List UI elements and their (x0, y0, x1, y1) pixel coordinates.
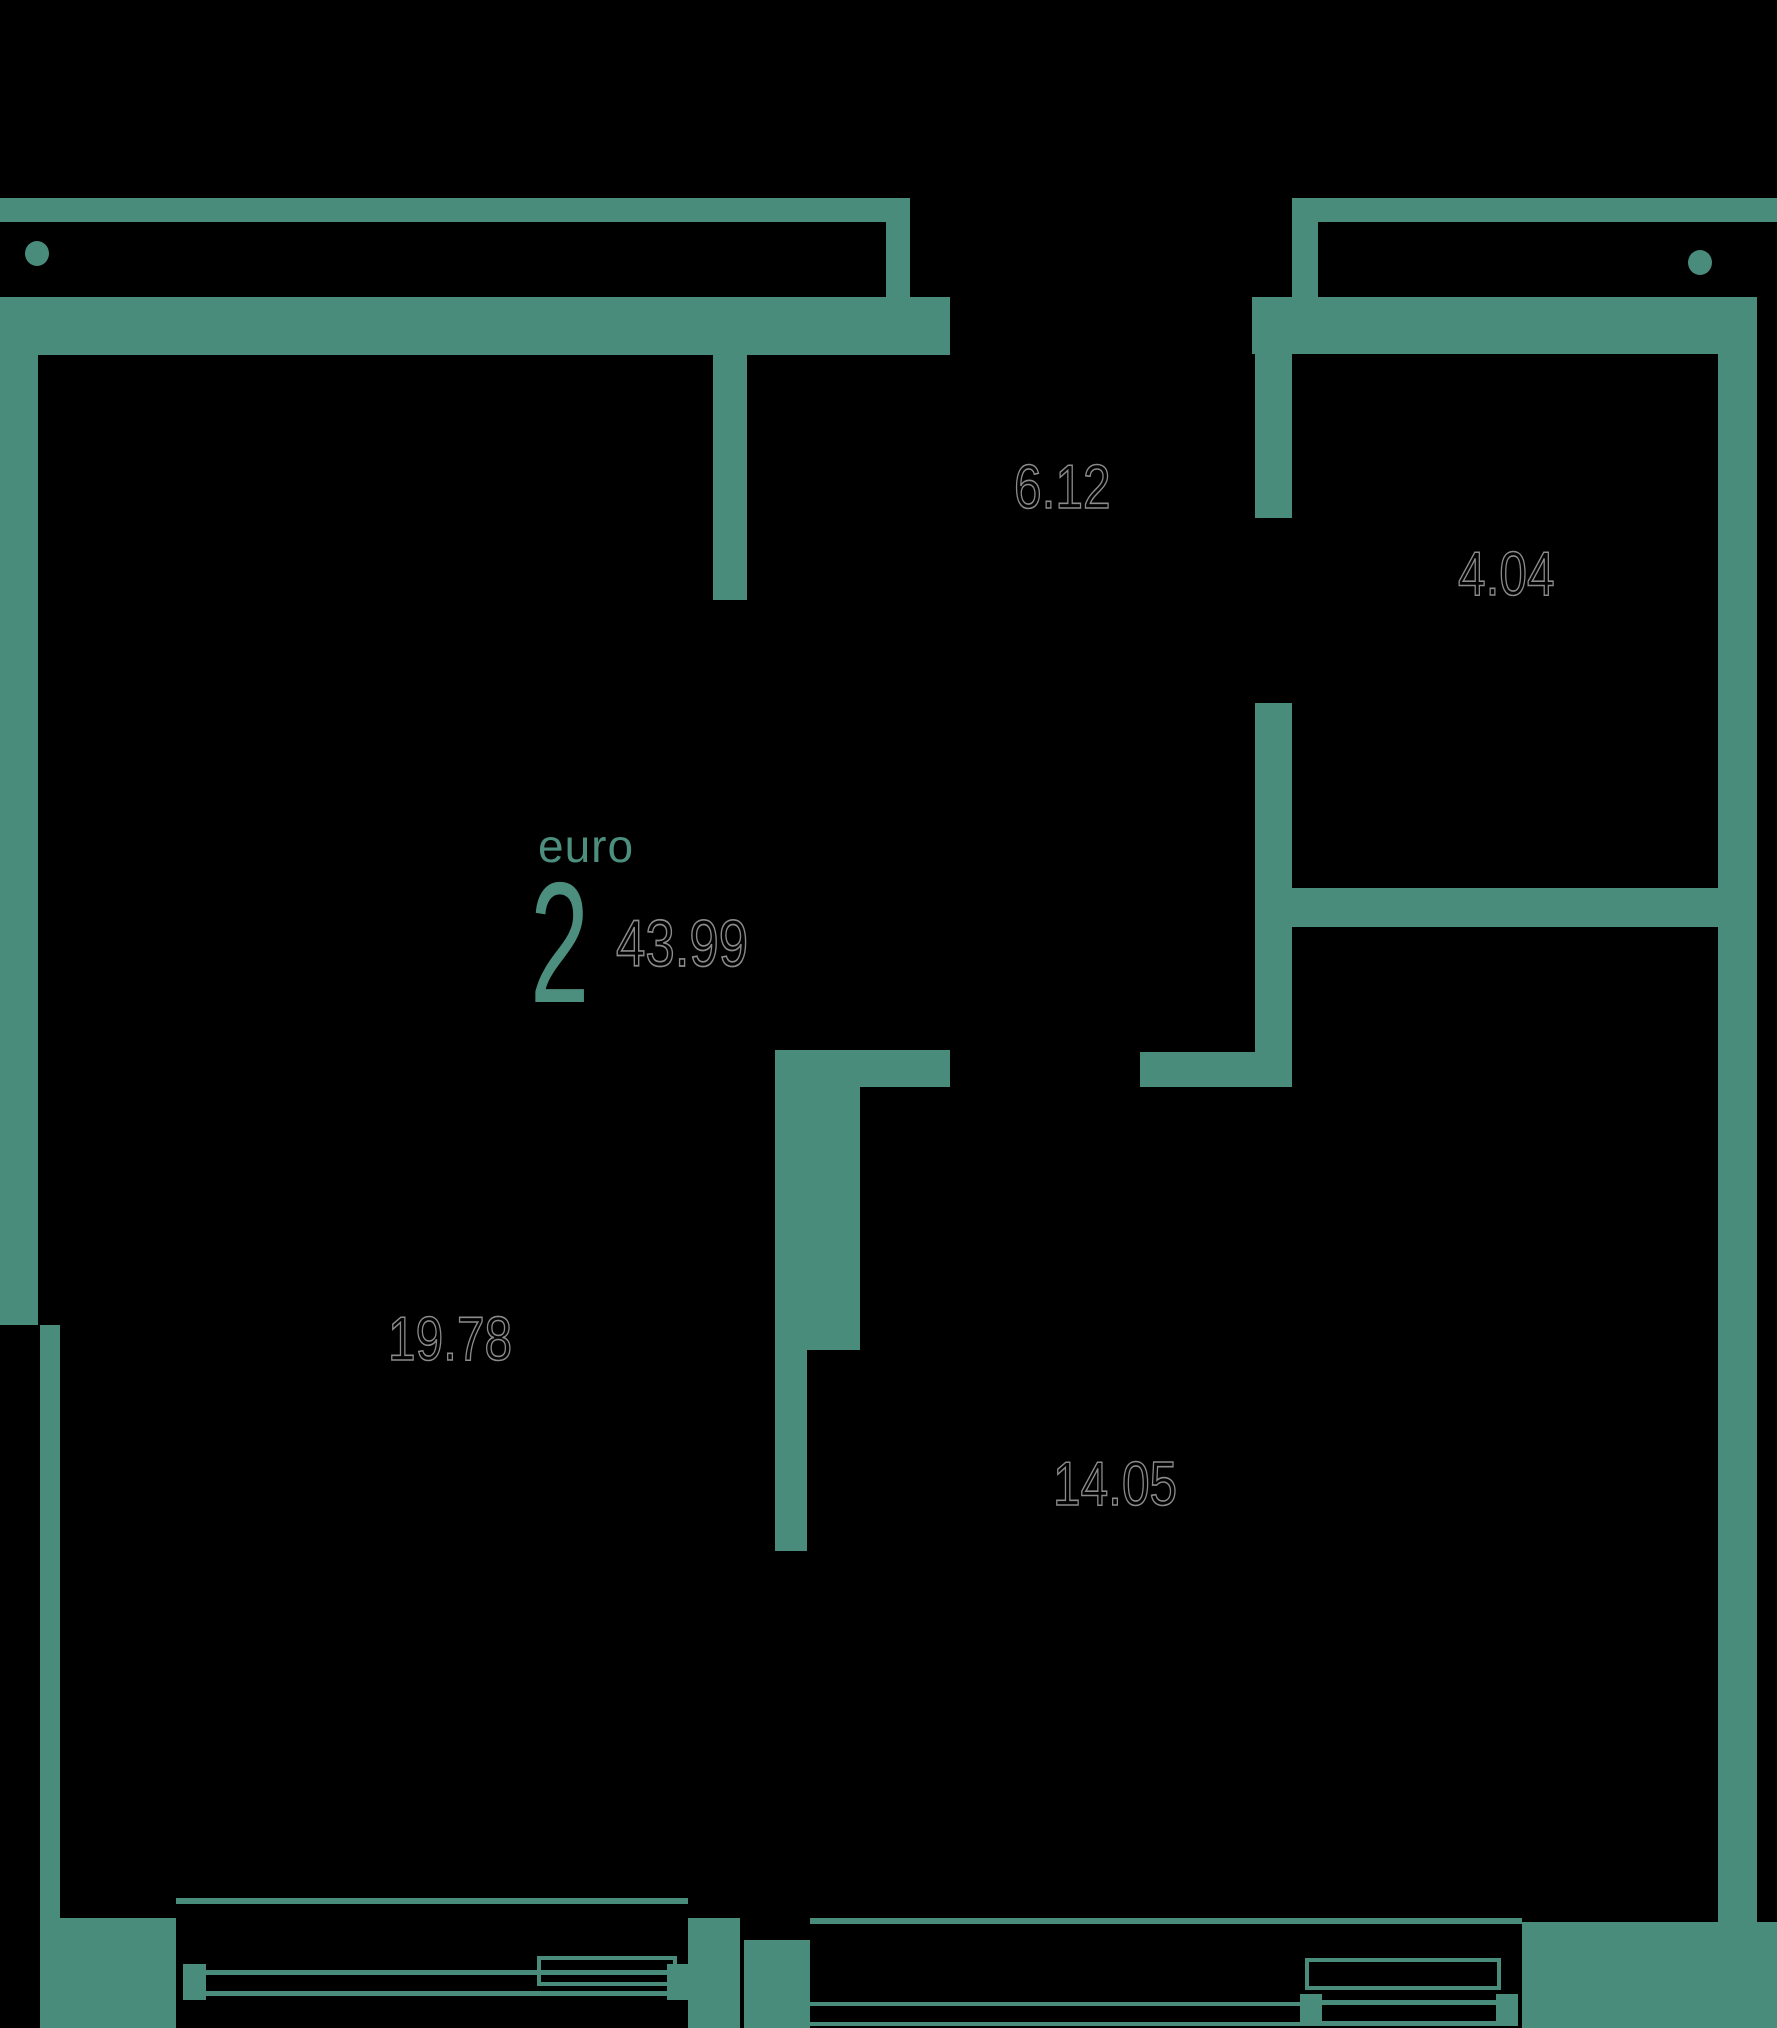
window-left-inner-line (176, 1898, 688, 1904)
wall-corner-bottom-right (1522, 1922, 1777, 2028)
apartment-rooms-count: 2 (530, 857, 589, 1029)
wall-kitchen-left-thick (775, 1087, 860, 1350)
balcony-door-line-bottom (810, 2022, 1302, 2026)
wall-top-left (0, 297, 950, 355)
wall-top-right (1252, 297, 1718, 354)
apartment-total-area: 43.99 (616, 910, 748, 976)
window-left-cap-left (183, 1964, 206, 2000)
balcony-rail-left (0, 198, 910, 222)
window-right-casement (1305, 1958, 1501, 1990)
wall-left-loggia (40, 1325, 60, 2028)
balcony-rail-right (1292, 198, 1777, 222)
window-right-cap-right (1496, 1994, 1518, 2026)
balcony-rail-left-end (886, 198, 910, 298)
column-dot-right-icon (1688, 250, 1712, 275)
window-right-frame-top (1300, 2000, 1518, 2005)
room-area-bathroom: 4.04 (1458, 544, 1555, 606)
window-right-inner-line (810, 1918, 1522, 1924)
floor-plan: euro 2 43.99 6.12 4.04 19.78 14.05 (0, 0, 1777, 2028)
balcony-door-line-top (810, 2002, 1302, 2006)
pier-bottom-left (60, 1918, 176, 2028)
window-left-frame-bottom (183, 1991, 690, 1996)
window-right-cap-left (1300, 1994, 1322, 2026)
wall-right (1718, 297, 1757, 1922)
pier-bottom-middle-left (688, 1918, 740, 2028)
pier-bottom-middle (744, 1940, 810, 2028)
wall-hallway-left (713, 355, 747, 600)
wall-bathroom-left-lower (1255, 703, 1292, 1083)
wall-bathroom-left-upper (1255, 353, 1292, 518)
wall-left (0, 297, 38, 1325)
wall-hallway-bottom-left (775, 1050, 950, 1087)
room-area-kitchen: 14.05 (1053, 1454, 1177, 1516)
window-right-frame-bottom (1300, 2021, 1518, 2026)
wall-kitchen-left-thin (775, 1350, 807, 1551)
balcony-rail-right-end (1292, 198, 1318, 298)
room-area-hallway: 6.12 (1014, 457, 1111, 519)
column-dot-left-icon (25, 241, 49, 266)
wall-bathroom-bottom (1292, 888, 1718, 927)
window-left-casement (537, 1956, 677, 1986)
room-area-living-room: 19.78 (388, 1309, 512, 1371)
